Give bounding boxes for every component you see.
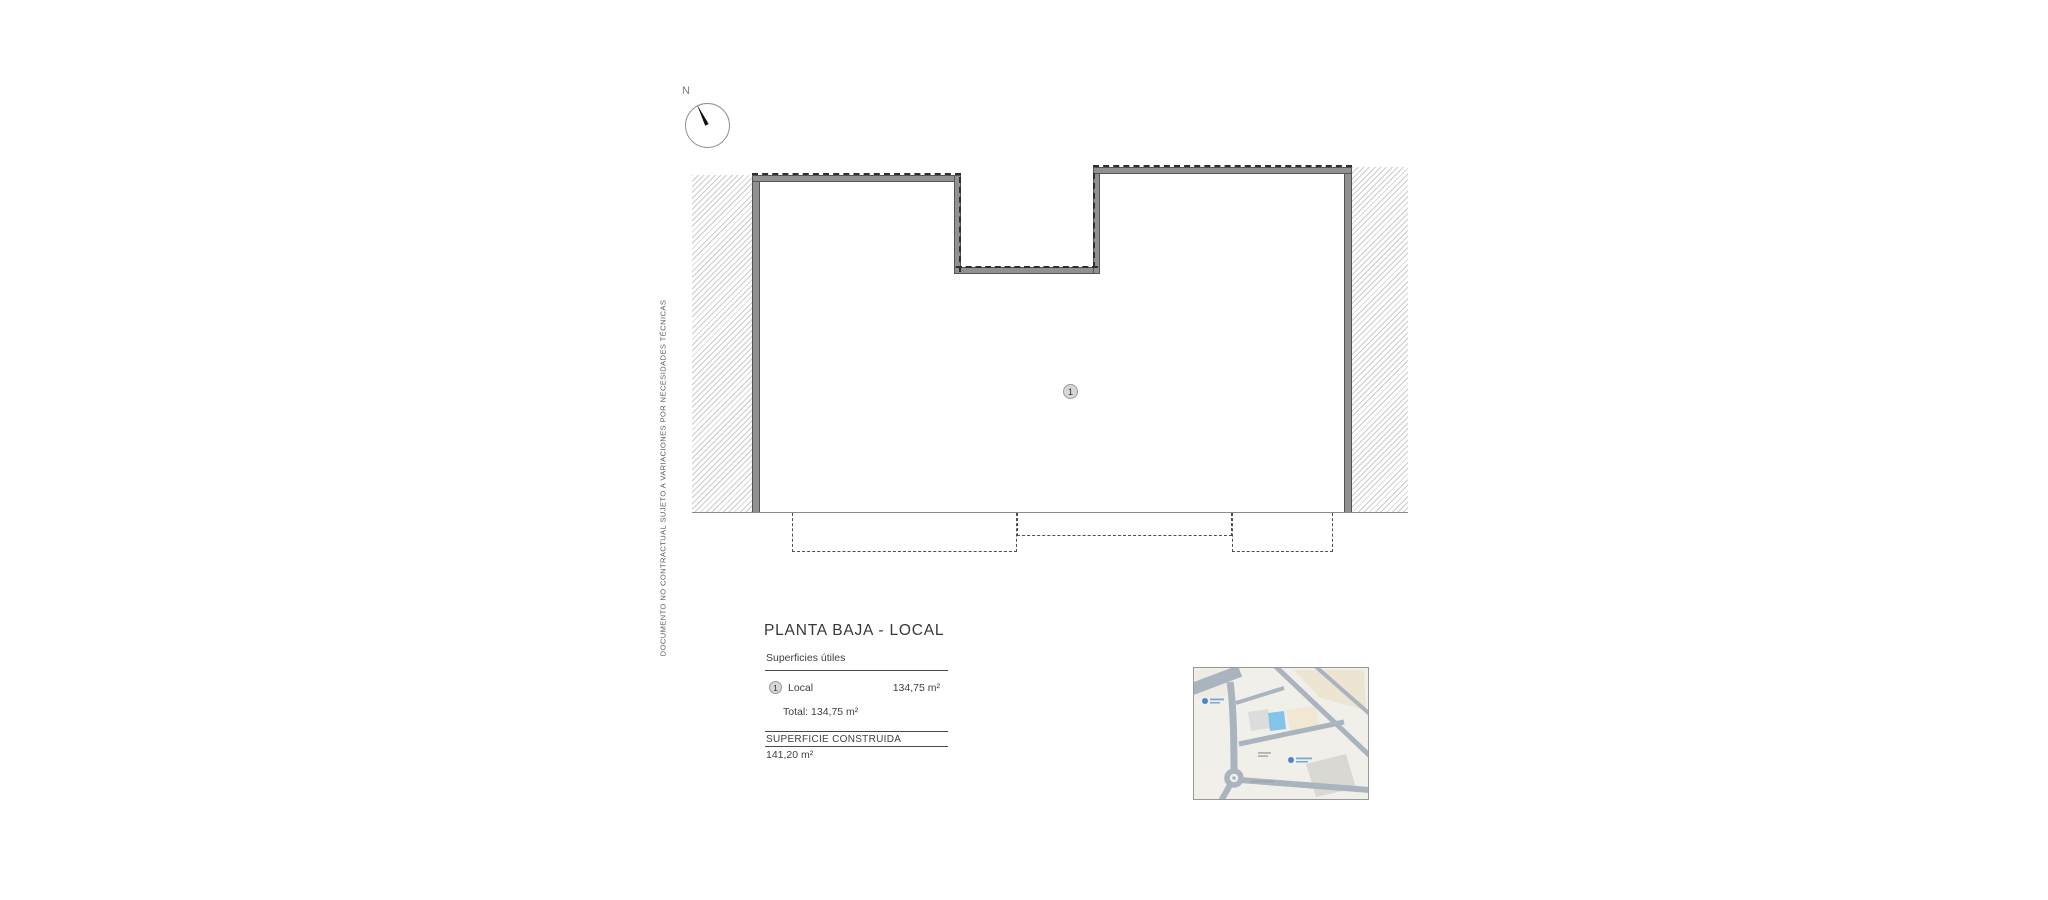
map-poi-label-line (1296, 758, 1312, 760)
map-poi-icon-top-left (1202, 698, 1208, 704)
map-street-label-line (1250, 781, 1274, 783)
hatch-right-party-wall (1352, 167, 1408, 513)
surface-row-label: Local (788, 682, 813, 694)
hatch-left-party-wall (692, 175, 752, 513)
dashed-edge-notch-right (1093, 173, 1095, 268)
map-place-label-line (1258, 752, 1271, 754)
north-arrow-icon (707, 125, 711, 148)
wall-left (752, 175, 760, 513)
plan-sheet: N DOCUMENTO NO CONTRACTUAL SUJETO A VARI… (0, 0, 2048, 900)
map-poi-label-line (1210, 702, 1220, 704)
north-label: N (682, 85, 690, 97)
dashed-edge-notch-left (959, 177, 961, 272)
legend-rule-1 (765, 670, 948, 671)
map-poi-icon-center (1288, 757, 1294, 763)
awning-outline-middle (1017, 513, 1232, 536)
legend-rule-3 (765, 746, 948, 747)
highlighted-parcel (1268, 711, 1286, 731)
location-map-canvas (1194, 668, 1368, 799)
page-title: PLANTA BAJA - LOCAL (764, 622, 944, 640)
wall-right (1344, 167, 1352, 513)
map-poi-label-line (1210, 699, 1224, 701)
constructed-surface-heading: SUPERFICIE CONSTRUIDA (766, 734, 901, 745)
surface-row: 1 Local 134,75 m² (765, 679, 948, 696)
awning-outline-left (792, 513, 1017, 552)
disclaimer-text: DOCUMENTO NO CONTRACTUAL SUJETO A VARIAC… (659, 300, 668, 657)
dashed-edge-top-right (1093, 165, 1352, 167)
wall-top-left (752, 175, 961, 182)
location-map (1193, 667, 1369, 800)
useful-surfaces-heading: Superficies útiles (766, 652, 845, 664)
unit-1-badge: 1 (1063, 384, 1078, 399)
map-place-label-line (1258, 755, 1268, 757)
surface-row-badge: 1 (769, 681, 782, 694)
wall-top-right (1093, 167, 1352, 174)
map-poi-label-line (1296, 761, 1308, 763)
constructed-surface-value: 141,20 m² (766, 749, 813, 761)
map-road-left-vertical (1230, 682, 1234, 770)
dashed-edge-notch-bottom (956, 266, 1098, 268)
map-roundabout-center (1232, 776, 1236, 780)
surfaces-total: Total: 134,75 m² (783, 706, 858, 718)
surface-row-value: 134,75 m² (848, 682, 940, 694)
wall-notch-bottom (954, 267, 1100, 274)
legend-rule-2 (765, 731, 948, 732)
map-block-center-gray (1248, 709, 1271, 731)
awning-outline-right (1232, 513, 1333, 552)
dashed-edge-top-left (752, 173, 961, 175)
